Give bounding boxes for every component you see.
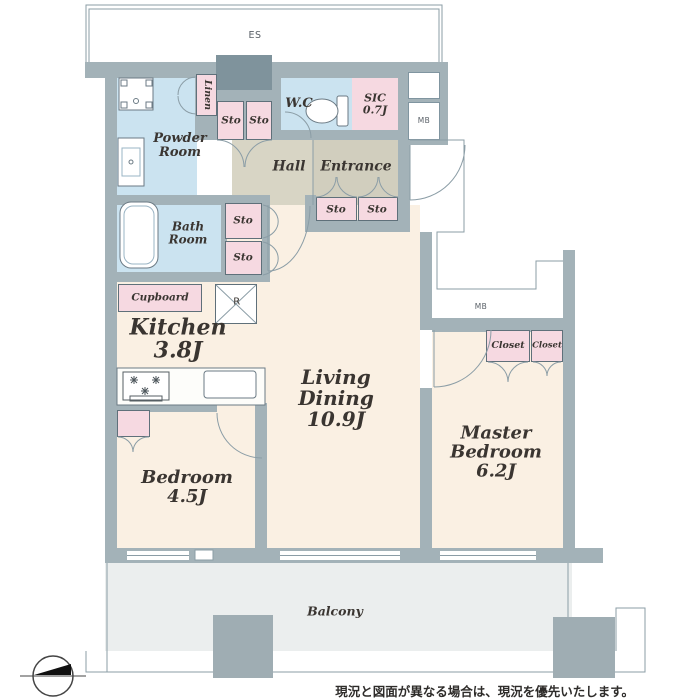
es-label: ES: [248, 31, 261, 41]
wall-mbr-left-lower: [420, 388, 432, 563]
meter-box-label-top: MB: [418, 117, 431, 125]
kitchen-label: Kitchen3.8J: [129, 317, 226, 364]
entrance-door-arc: [410, 145, 465, 200]
bath-room-label: BathRoom: [169, 220, 208, 245]
sto-label-entrance-1: Sto: [326, 204, 345, 215]
disclaimer-note: 現況と図面が異なる場合は、現況を優先いたします。: [335, 681, 634, 700]
cupboard-label: Cupboard: [131, 292, 188, 303]
wall-ld-top-right: [313, 220, 410, 232]
powder-room-label: PowderRoom: [153, 132, 207, 160]
master-bedroom-label: Master Bedroom 6.2J: [450, 423, 542, 480]
pipe-shaft: [216, 55, 272, 90]
entrance-label: Entrance: [320, 160, 391, 175]
refrigerator-label: R: [233, 298, 240, 309]
wall-mbr-left-upper: [420, 232, 432, 330]
floor-plan: ES PowderRoom Linen Sto Sto W.C SIC0.7J …: [0, 0, 700, 700]
sto-label-entrance-2: Sto: [367, 204, 386, 215]
void-outline: [410, 140, 563, 289]
sto-label-bath-1: Sto: [233, 215, 252, 226]
wall-bottom: [105, 548, 603, 563]
bedroom-closet-box: [117, 410, 150, 437]
meter-box-label-mid: MB: [475, 303, 488, 311]
sto-label-top-2: Sto: [249, 115, 268, 126]
hall-label: Hall: [273, 160, 306, 175]
sto-label-top-1: Sto: [221, 115, 240, 126]
bedroom-label: Bedroom4.5J: [141, 468, 233, 506]
north-compass-icon: [20, 656, 86, 696]
balcony-label: Balcony: [307, 604, 363, 617]
wc-label: W.C: [285, 97, 312, 111]
wall-sto-column: [262, 195, 270, 282]
es-strip-outline: [86, 5, 442, 62]
closet-label-2: Closet: [532, 342, 562, 351]
wall-mbr-right: [563, 250, 575, 563]
linen-label: Linen: [202, 80, 212, 110]
meter-box-upper: [408, 72, 440, 99]
closet-label-1: Closet: [491, 341, 524, 351]
wall-entrance-right: [398, 140, 410, 232]
wall-bedroom-right: [255, 403, 267, 548]
sic-label: SIC0.7J: [363, 92, 387, 115]
wall-wc-bottom: [281, 130, 398, 140]
sto-label-bath-2: Sto: [233, 252, 252, 263]
living-dining-label: Living Dining 10.9J: [298, 367, 374, 431]
wall-left: [105, 62, 117, 563]
